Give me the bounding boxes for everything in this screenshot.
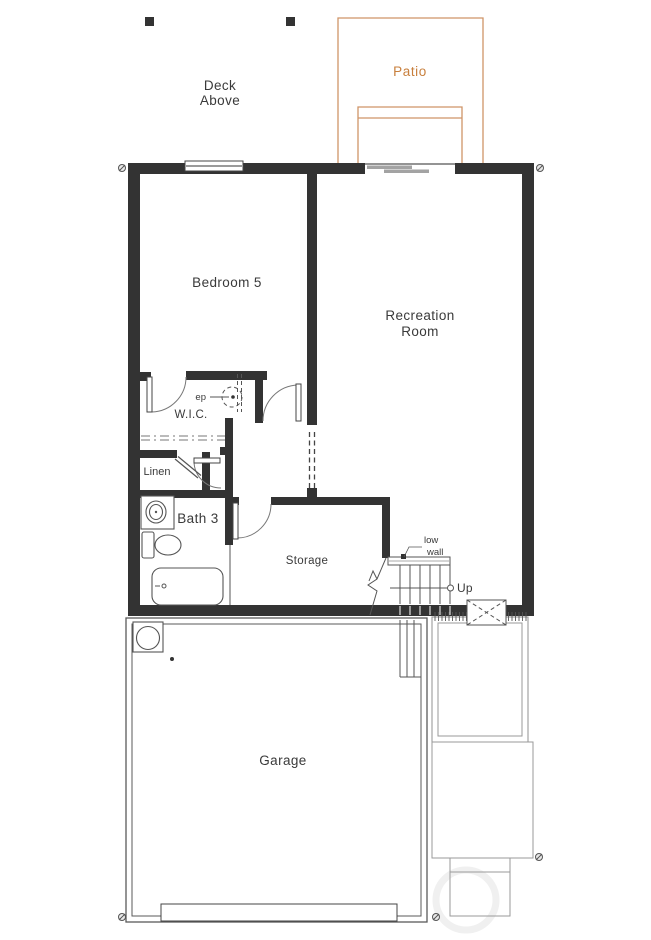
patio-label: Patio bbox=[393, 64, 427, 79]
up-label: Up bbox=[457, 581, 473, 595]
bedroom-hall-door-arc bbox=[263, 385, 298, 421]
deck-post-right bbox=[286, 17, 295, 26]
bath3-label: Bath 3 bbox=[177, 511, 218, 526]
bedroom-hall-door-leaf bbox=[296, 384, 301, 421]
wall-storage-right bbox=[382, 505, 390, 558]
deck-above-label-line1: Deck bbox=[204, 78, 236, 93]
exterior-walls bbox=[128, 163, 534, 616]
bath-door-leaf bbox=[194, 458, 220, 463]
garage-outer-wall bbox=[126, 618, 427, 922]
wall-wic-top bbox=[186, 371, 267, 380]
slider-panel-1 bbox=[367, 166, 412, 170]
walkway-outline bbox=[432, 742, 533, 858]
wall-hall-horizontal-stub bbox=[220, 447, 233, 455]
corner-marker bbox=[536, 854, 543, 861]
garage-door bbox=[161, 904, 397, 921]
window-top bbox=[185, 161, 243, 171]
ep-panel-dot bbox=[231, 395, 235, 399]
deck-above-area: Deck Above bbox=[145, 17, 295, 108]
patio-outline bbox=[338, 18, 483, 166]
garage-area: Garage bbox=[126, 618, 427, 922]
water-heater bbox=[137, 627, 160, 650]
garage-label: Garage bbox=[259, 753, 306, 768]
sliding-glass-door bbox=[365, 163, 455, 174]
patio-area: Patio bbox=[338, 18, 483, 166]
wall-hall-stub bbox=[255, 380, 263, 423]
wic-door-leaf bbox=[147, 377, 152, 412]
corner-marker bbox=[433, 914, 440, 921]
porch-area bbox=[432, 617, 528, 742]
wall-wic-hall bbox=[225, 418, 233, 497]
patio-step-outline bbox=[358, 107, 462, 166]
wall-storage-top bbox=[271, 497, 390, 505]
slider-panel-2 bbox=[384, 170, 429, 174]
floor-drain bbox=[170, 657, 174, 661]
ep-label: ep bbox=[195, 392, 206, 403]
walkway-area bbox=[432, 742, 533, 930]
up-newel-post bbox=[448, 585, 454, 591]
recreation-label-line1: Recreation bbox=[385, 308, 454, 323]
entry-step bbox=[450, 858, 510, 916]
wall-bedroom-recreation bbox=[307, 174, 317, 425]
wall-right bbox=[522, 163, 534, 616]
deck-post-left bbox=[145, 17, 154, 26]
corner-marker bbox=[119, 165, 126, 172]
wall-left bbox=[128, 163, 140, 616]
floor-plan-svg: Deck Above Patio Garage bbox=[0, 0, 651, 940]
low-wall-label-line2: wall bbox=[426, 547, 443, 558]
storage-door-leaf bbox=[233, 503, 238, 539]
toilet-tank bbox=[142, 532, 154, 558]
bathtub bbox=[152, 568, 223, 605]
porch-outer bbox=[432, 617, 528, 742]
floor-plan-page: Deck Above Patio Garage bbox=[0, 0, 651, 940]
corner-marker bbox=[537, 165, 544, 172]
watermark-circle bbox=[436, 870, 496, 930]
storage-label: Storage bbox=[286, 555, 328, 567]
linen-label: Linen bbox=[144, 466, 171, 478]
wic-door-arc bbox=[152, 377, 186, 412]
toilet-bowl bbox=[155, 535, 181, 555]
wall-linen-top bbox=[140, 450, 177, 458]
recreation-label-line2: Room bbox=[401, 324, 439, 339]
storage-door-arc bbox=[237, 504, 271, 538]
low-wall-leader-line bbox=[404, 547, 422, 557]
deck-above-label-line2: Above bbox=[200, 93, 240, 108]
corner-marker bbox=[119, 914, 126, 921]
sill-hatch-right bbox=[507, 612, 528, 621]
sink-drain bbox=[155, 511, 157, 513]
low-wall-label-line1: low bbox=[424, 535, 438, 546]
bedroom5-label: Bedroom 5 bbox=[192, 275, 262, 290]
wic-label: W.I.C. bbox=[174, 409, 207, 421]
